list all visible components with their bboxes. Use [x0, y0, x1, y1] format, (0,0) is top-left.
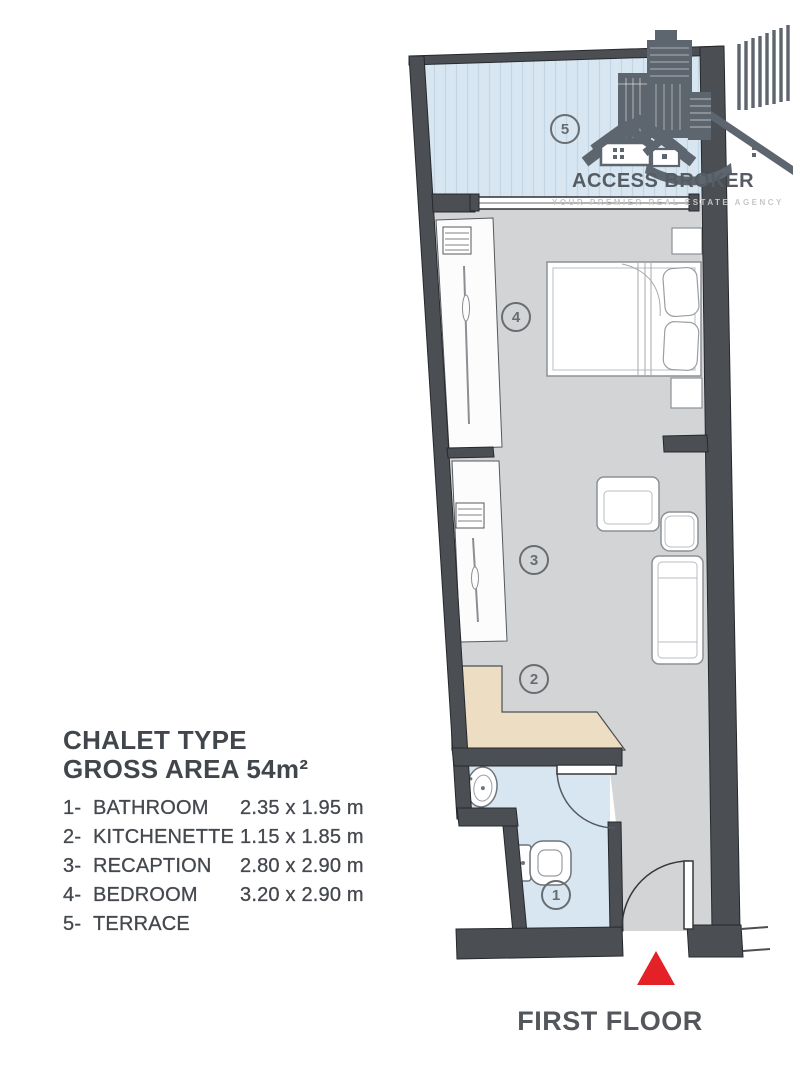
- logo-tagline: YOUR PREMIER REAL ESTATE AGENCY: [552, 198, 772, 207]
- legend-room-dims: 3.20 x 2.90 m: [240, 884, 364, 906]
- legend: CHALET TYPE GROSS AREA 54m² 1-BATHROOM 2…: [63, 726, 364, 935]
- room-marker-bedroom: 4: [501, 302, 531, 332]
- legend-room-dims: 2.35 x 1.95 m: [240, 797, 364, 819]
- room-marker-terrace: 5: [550, 114, 580, 144]
- nightstand: [672, 228, 702, 254]
- legend-room-name: 4-BEDROOM: [63, 884, 240, 906]
- legend-room-name: 5-TERRACE: [63, 913, 240, 935]
- legend-subtitle: GROSS AREA 54m²: [63, 755, 364, 784]
- legend-title: CHALET TYPE: [63, 726, 364, 755]
- logo-brand-name: ACCESS BROKER: [572, 170, 752, 193]
- armchair: [597, 477, 659, 531]
- toilet: [516, 841, 571, 885]
- legend-room-name: 3-RECAPTION: [63, 855, 240, 877]
- legend-room-dims: [240, 913, 364, 935]
- legend-room-list: 1-BATHROOM 2.35 x 1.95 m 2-KITCHENETTE 1…: [63, 797, 364, 935]
- legend-room-name: 2-KITCHENETTE: [63, 826, 240, 848]
- legend-room-dims: 2.80 x 2.90 m: [240, 855, 364, 877]
- legend-room-dims: 1.15 x 1.85 m: [240, 826, 364, 848]
- floor-plan-page: ACCESS BROKER YOUR PREMIER REAL ESTATE A…: [0, 0, 800, 1065]
- sofa: [652, 556, 703, 664]
- legend-room-name: 1-BATHROOM: [63, 797, 240, 819]
- room-marker-reception: 3: [519, 545, 549, 575]
- floor-label: FIRST FLOOR: [460, 1006, 760, 1037]
- reception-closet: [452, 461, 507, 642]
- entrance-arrow-icon: [637, 951, 675, 985]
- room-marker-kitchenette: 2: [519, 664, 549, 694]
- side-table: [661, 512, 698, 551]
- bed: [547, 262, 701, 376]
- nightstand: [671, 378, 702, 408]
- room-marker-bathroom: 1: [541, 880, 571, 910]
